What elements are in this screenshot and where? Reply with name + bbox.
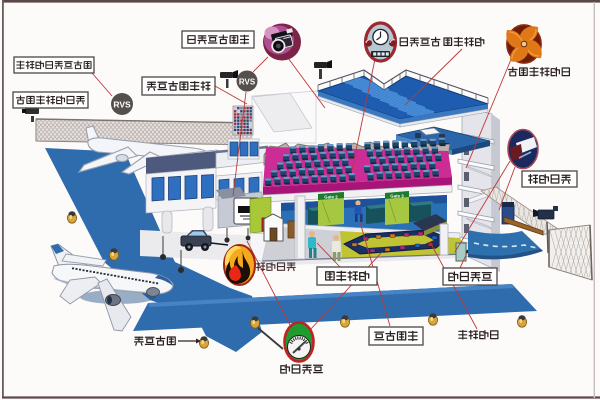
svg-text:Gate 3: Gate 3: [390, 193, 404, 198]
svg-text:RVS: RVS: [239, 78, 256, 87]
svg-text:Gate 2: Gate 2: [324, 194, 338, 199]
svg-text:RVS: RVS: [113, 100, 131, 110]
